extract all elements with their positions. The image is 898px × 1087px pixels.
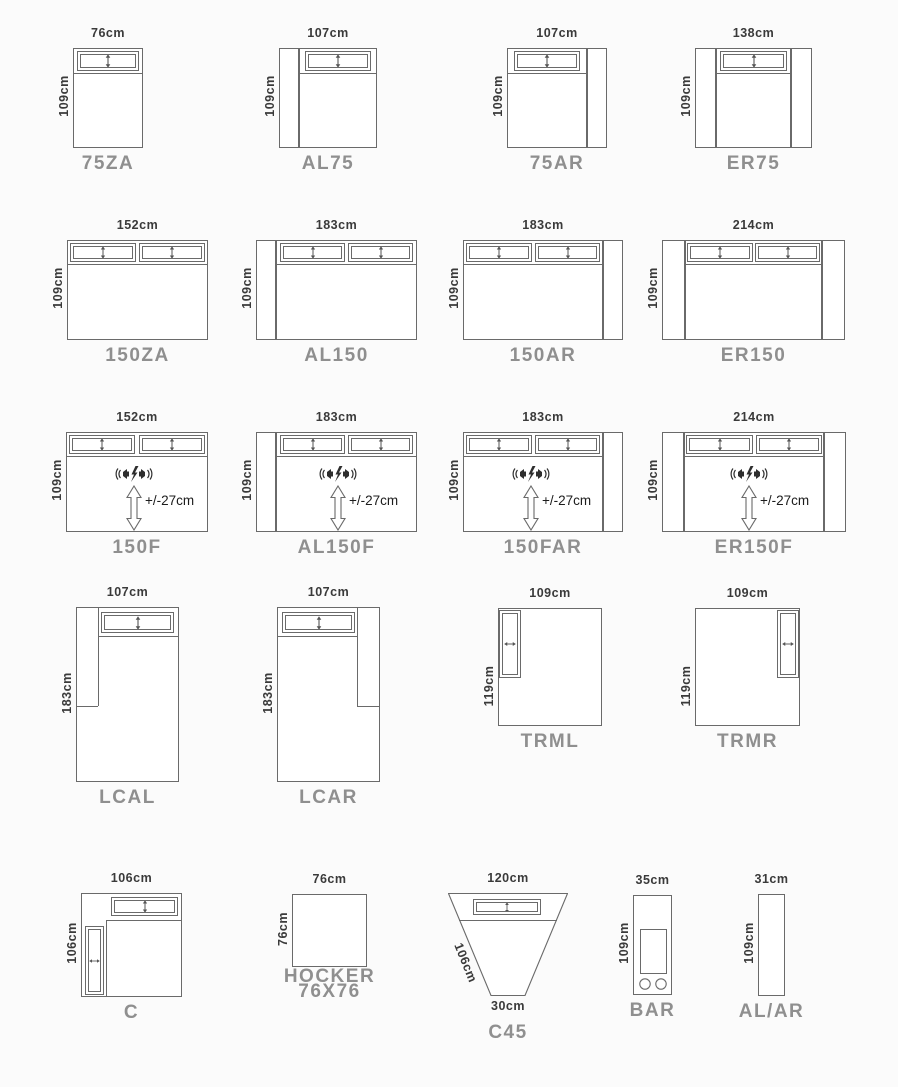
armrest-line — [357, 607, 358, 706]
module-150FAR: 183cm 109cm +/-27cm 150FAR — [463, 432, 623, 532]
headrest-arrow-icon — [503, 902, 511, 912]
backrest-line — [685, 264, 822, 265]
width-dimension: 109cm — [478, 586, 622, 600]
headrest — [305, 51, 371, 71]
seat-line — [106, 920, 182, 921]
armrest-right — [791, 48, 812, 148]
extension-range-label: +/-27cm — [145, 493, 194, 508]
headrest-arrow-icon — [377, 246, 385, 259]
backrest-line — [463, 456, 603, 457]
backrest-line — [276, 456, 417, 457]
headrest-arrow-icon — [495, 246, 503, 259]
height-dimension: 109cm — [50, 445, 64, 515]
armrest-line — [76, 706, 98, 707]
module-TRML: 109cm 119cm TRML — [498, 608, 602, 726]
width-dimension: 183cm — [443, 218, 643, 232]
height-dimension: 109cm — [263, 61, 277, 131]
headrest-arrow-icon — [168, 246, 176, 259]
height-dimension: 109cm — [742, 908, 756, 978]
width-dimension: 183cm — [443, 410, 643, 424]
height-dimension: 109cm — [447, 445, 461, 515]
width-dimension: 107cm — [257, 585, 400, 599]
headrest-arrow-icon — [543, 54, 551, 68]
width-dimension: 109cm — [675, 586, 820, 600]
module-ER150F: 214cm 109cm +/-27cm ER150F — [662, 432, 846, 532]
cupholder-circles-icon — [633, 975, 672, 993]
backrest-line — [276, 264, 417, 265]
headrest-arrow-icon — [98, 438, 106, 451]
module-name: LCAR — [247, 787, 410, 809]
headrest-arrow-icon — [716, 246, 724, 259]
width-dimension: 76cm — [53, 26, 163, 40]
headrest-arrow-icon — [564, 246, 572, 259]
backrest-line — [684, 456, 824, 457]
module-name: BAR — [603, 1000, 702, 1022]
backrest-line — [98, 636, 179, 637]
headrest-arrow-icon — [564, 438, 572, 451]
module-150AR: 183cm 109cm 150AR — [463, 240, 623, 340]
width-dimension: 152cm — [47, 218, 228, 232]
module-name: C45 — [418, 1022, 598, 1044]
armrest-left — [279, 48, 299, 148]
module-AL75: 107cm 109cm AL75 — [279, 48, 377, 148]
headrest-arrow-icon — [168, 438, 176, 451]
module-name: ER150F — [632, 537, 876, 559]
armrest-right — [824, 432, 846, 532]
height-dimension: 119cm — [679, 651, 693, 721]
width-dimension: 183cm — [236, 218, 437, 232]
headrest — [280, 243, 345, 262]
module-name-line2: 76X76 — [298, 981, 360, 1002]
module-75ZA: 76cm 109cm 75ZA — [73, 48, 143, 148]
height-dimension: 109cm — [240, 445, 254, 515]
headrest — [111, 897, 178, 916]
height-dimension: 109cm — [51, 253, 65, 323]
headrest — [535, 435, 600, 454]
height-dimension: 109cm — [240, 253, 254, 323]
backrest-line — [507, 73, 587, 74]
armrest-right — [603, 240, 623, 340]
module-name: TRML — [468, 731, 632, 753]
headrest-arrow-icon — [309, 246, 317, 259]
module-name: 150AR — [433, 345, 653, 367]
seat-extension-arrow-icon — [522, 485, 540, 531]
extension-range-label: +/-27cm — [542, 493, 591, 508]
module-HOCKER: 76cm 76cm HOCKER76X76 — [292, 894, 367, 967]
width-dimension: 214cm — [642, 218, 865, 232]
width-dimension: 31cm — [738, 872, 805, 886]
headrest — [473, 899, 541, 915]
headrest — [755, 243, 820, 262]
headrest — [466, 435, 532, 454]
height-dimension: 76cm — [276, 894, 290, 964]
module-LCAL: 107cm 183cm LCAL — [76, 607, 179, 782]
headrest — [139, 435, 205, 454]
power-massage-icon — [511, 466, 551, 482]
backrest-line — [67, 264, 208, 265]
module-name: 75AR — [477, 153, 637, 175]
width-dimension: 138cm — [675, 26, 832, 40]
height-dimension: 106cm — [65, 908, 79, 978]
backrest-line — [299, 73, 377, 74]
headrest — [466, 243, 532, 262]
headrest-arrow-icon — [309, 438, 317, 451]
backrest-line — [73, 73, 143, 74]
headrest — [348, 435, 413, 454]
width-dimension: 106cm — [61, 871, 202, 885]
headrest — [756, 435, 822, 454]
headrest-arrow-icon — [315, 616, 323, 630]
side-headrest — [777, 610, 799, 678]
armrest-line — [98, 607, 99, 706]
seat-extension-arrow-icon — [125, 485, 143, 531]
headrest — [720, 51, 787, 71]
headrest — [70, 243, 136, 262]
power-massage-icon — [114, 466, 154, 482]
module-C45: 120cm 106cm 30cm C45 — [448, 893, 568, 996]
headrest-arrow-icon — [750, 54, 758, 68]
headrest-arrow-icon — [785, 438, 793, 451]
height-dimension: 109cm — [491, 61, 505, 131]
seat-extension-arrow-icon — [740, 485, 758, 531]
module-name: TRMR — [665, 731, 830, 753]
armrest-right — [822, 240, 845, 340]
height-dimension: 109cm — [447, 253, 461, 323]
module-name: 75ZA — [43, 153, 173, 175]
sofa-module-size-chart: 76cm 109cm 75ZA 107cm 109cm AL75 107cm 1… — [0, 0, 898, 1087]
module-75AR: 107cm 109cm 75AR — [507, 48, 607, 148]
armrest-left — [256, 240, 276, 340]
headrest — [139, 243, 205, 262]
bar-door — [640, 929, 667, 974]
module-name: LCAL — [46, 787, 209, 809]
headrest-arrow-icon — [782, 640, 794, 648]
backrest-line — [716, 73, 791, 74]
module-TRMR: 109cm 119cm TRMR — [695, 608, 800, 726]
module-name: HOCKER76X76 — [262, 969, 397, 999]
headrest-arrow-icon — [495, 438, 503, 451]
height-dimension: 109cm — [617, 908, 631, 978]
module-name: C — [51, 1002, 212, 1024]
module-AL150F: 183cm 109cm +/-27cm AL150F — [256, 432, 417, 532]
armrest-right — [587, 48, 607, 148]
headrest — [77, 51, 139, 71]
height-dimension: 119cm — [482, 651, 496, 721]
module-name: 150ZA — [37, 345, 238, 367]
module-name: AL/AR — [728, 1001, 815, 1023]
armrest-left — [695, 48, 716, 148]
module-outline — [292, 894, 367, 967]
height-dimension: 109cm — [679, 61, 693, 131]
module-name: 150F — [36, 537, 238, 559]
module-name: ER150 — [632, 345, 875, 367]
module-outline — [277, 607, 380, 782]
power-massage-icon — [318, 466, 358, 482]
module-ER150: 214cm 109cm ER150 — [662, 240, 845, 340]
headrest — [69, 435, 135, 454]
headrest-arrow-icon — [784, 246, 792, 259]
module-outline — [76, 607, 179, 782]
width-dimension: 120cm — [428, 871, 588, 885]
width-dimension: 107cm — [56, 585, 199, 599]
armrest-right — [603, 432, 623, 532]
module-BAR: 35cm 109cm BAR — [633, 895, 672, 995]
backrest-line — [459, 920, 557, 921]
headrest — [280, 435, 345, 454]
height-dimension: 109cm — [646, 445, 660, 515]
seat-line — [106, 920, 107, 997]
headrest-arrow-icon — [504, 640, 516, 648]
side-headrest — [85, 926, 104, 995]
module-150ZA: 152cm 109cm 150ZA — [67, 240, 208, 340]
bottom-dimension: 30cm — [448, 999, 568, 1013]
extension-range-label: +/-27cm — [349, 493, 398, 508]
width-dimension: 35cm — [613, 873, 692, 887]
headrest-arrow-icon — [89, 957, 100, 965]
height-dimension: 109cm — [646, 253, 660, 323]
module-name: AL75 — [249, 153, 407, 175]
width-dimension: 183cm — [236, 410, 437, 424]
headrest — [514, 51, 580, 71]
height-dimension: 183cm — [261, 658, 275, 728]
backrest-line — [66, 456, 208, 457]
module-ER75: 138cm 109cm ER75 — [695, 48, 812, 148]
module-name: ER75 — [665, 153, 842, 175]
extension-range-label: +/-27cm — [760, 493, 809, 508]
width-dimension: 107cm — [259, 26, 397, 40]
module-name: AL150 — [226, 345, 447, 367]
headrest — [687, 243, 753, 262]
headrest-arrow-icon — [104, 54, 112, 68]
backrest-line — [277, 636, 357, 637]
module-150F: 152cm 109cm +/-27cm 150F — [66, 432, 208, 532]
width-dimension: 214cm — [642, 410, 866, 424]
backrest-line — [463, 264, 603, 265]
module-outline — [758, 894, 785, 996]
seat-extension-arrow-icon — [329, 485, 347, 531]
headrest — [101, 612, 174, 633]
headrest-arrow-icon — [99, 246, 107, 259]
module-name: 150FAR — [433, 537, 653, 559]
armrest-left — [662, 240, 685, 340]
height-dimension: 109cm — [57, 61, 71, 131]
headrest — [282, 612, 355, 633]
headrest — [348, 243, 413, 262]
armrest-left — [256, 432, 276, 532]
power-massage-icon — [729, 466, 769, 482]
height-dimension: 183cm — [60, 658, 74, 728]
module-C: 106cm 106cm C — [81, 893, 182, 997]
headrest-arrow-icon — [141, 900, 149, 913]
headrest — [535, 243, 600, 262]
module-AL150: 183cm 109cm AL150 — [256, 240, 417, 340]
width-dimension: 107cm — [487, 26, 627, 40]
width-dimension: 76cm — [272, 872, 387, 886]
headrest-arrow-icon — [334, 54, 342, 68]
module-LCAR: 107cm 183cm LCAR — [277, 607, 380, 782]
side-headrest — [499, 610, 521, 678]
headrest — [686, 435, 753, 454]
width-dimension: 152cm — [46, 410, 228, 424]
armrest-line — [357, 706, 380, 707]
headrest-arrow-icon — [716, 438, 724, 451]
armrest-left — [662, 432, 684, 532]
headrest-arrow-icon — [377, 438, 385, 451]
module-AL-AR: 31cm 109cm AL/AR — [758, 894, 785, 996]
module-name: AL150F — [226, 537, 447, 559]
headrest-arrow-icon — [134, 616, 142, 630]
